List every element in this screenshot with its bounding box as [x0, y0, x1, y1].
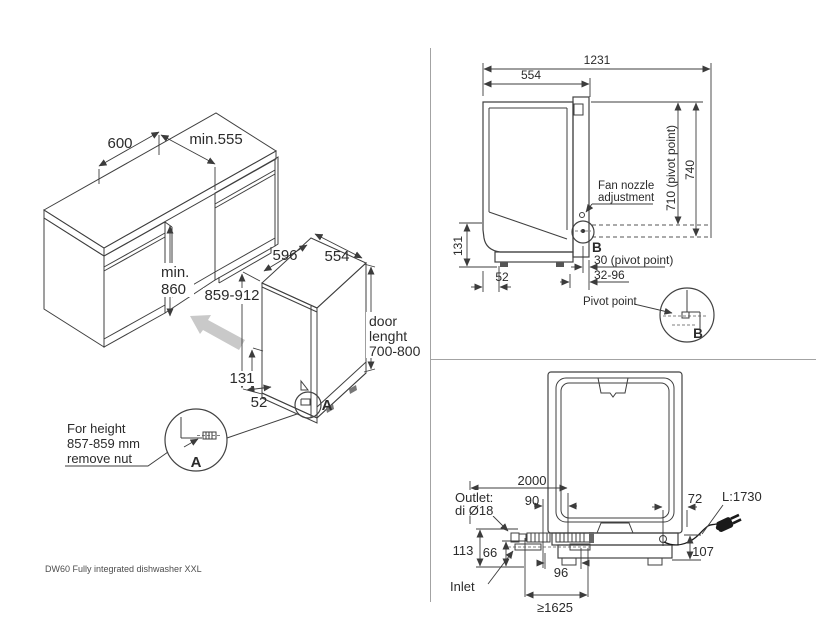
dim-door-length-line3: 700-800	[369, 343, 421, 359]
sideview-foot	[500, 262, 508, 267]
inlet-label: Inlet	[450, 579, 475, 594]
pivot-point-label: Pivot point	[583, 296, 638, 308]
detail-a-marker-label: A	[322, 397, 333, 414]
dim-inlet-height: 66	[483, 545, 497, 560]
outlet-label-line2: di Ø18	[455, 503, 493, 518]
right-cabinet-front	[215, 159, 275, 280]
dim-outlet-height: 113	[453, 543, 474, 558]
fan-nozzle-point	[580, 213, 585, 218]
rear-foot	[562, 558, 576, 565]
detail-a-note-line2: 857-859 mm	[67, 436, 140, 451]
dim-door-length-line1: door	[369, 313, 397, 329]
installation-drawing-page: 600 min.555 min. 860 596 554 859-912 131…	[0, 0, 820, 643]
counter-front-edge	[104, 151, 276, 256]
dim-depth: 554	[521, 68, 541, 82]
fan-nozzle-label-line2: adjustment	[598, 192, 655, 204]
dim-niche-depth: min.555	[189, 131, 242, 148]
dim-line-foot-offset	[247, 387, 271, 390]
dim-outlet-position: 90	[525, 493, 539, 508]
dim-drain-hose: 2000	[518, 473, 547, 488]
pivot-glyph	[682, 312, 689, 318]
hinge-glyph	[574, 104, 583, 115]
left-cabinet-front	[104, 222, 165, 347]
dim-niche-height-line2: 860	[161, 281, 186, 298]
rear-top-notch	[598, 378, 628, 397]
drawing-canvas: 600 min.555 min. 860 596 554 859-912 131…	[0, 0, 820, 643]
dim-pivot-height: 710 (pivot point)	[664, 125, 678, 211]
left-cabinet-side	[44, 218, 104, 347]
dim-niche-width: 600	[107, 135, 132, 152]
dim-unit-height: 859-912	[204, 287, 259, 304]
detail-a-label: A	[191, 454, 202, 471]
detail-a-note-line1: For height	[67, 421, 126, 436]
fan-nozzle-glyph	[301, 381, 308, 390]
dim-pivot-offset: 30 (pivot point)	[594, 253, 673, 267]
sideview-door	[573, 97, 589, 257]
detail-b-label: B	[693, 326, 703, 341]
dim-cord-position: 72	[688, 491, 702, 506]
dim-adjust-range: 32-96	[594, 268, 625, 282]
dim-base-height-rear: 107	[692, 544, 714, 559]
pivot-point-leader	[634, 304, 672, 313]
dim-total-depth: 1231	[584, 53, 611, 67]
dim-base-height: 131	[229, 370, 254, 387]
counter-left-edge	[44, 210, 104, 256]
detail-a-leader	[227, 414, 297, 438]
dim-unit-width: 596	[272, 247, 297, 264]
unit-side-face	[317, 263, 366, 418]
dim-min-distance: ≥1625	[537, 600, 573, 615]
sideview-foot	[556, 262, 564, 267]
move-direction-arrow-icon	[190, 315, 245, 350]
dim-740: 740	[683, 160, 697, 180]
rear-foot	[648, 558, 662, 565]
sideview-body	[483, 102, 573, 252]
dim-door-length-line2: lenght	[369, 328, 407, 344]
power-plug-icon	[714, 512, 743, 533]
dim-unit-depth: 554	[324, 248, 349, 265]
dim-niche-height-line1: min.	[161, 264, 189, 281]
unit-door-face	[262, 283, 317, 418]
fan-nozzle-label-line1: Fan nozzle	[598, 180, 654, 192]
dim-foot-offset-side: 52	[495, 270, 509, 284]
unit-foot	[349, 385, 357, 394]
rear-connection-view: 2000 90 72 L:1730 Outlet: di Ø18 113 66 …	[450, 372, 762, 615]
detail-b-circle	[660, 288, 714, 342]
dim-hose-span: 96	[554, 565, 568, 580]
rear-inner-panel	[556, 378, 674, 522]
model-caption: DW60 Fully integrated dishwasher XXL	[45, 564, 202, 574]
dim-cord-length: L:1730	[722, 489, 762, 504]
rear-bottom-bump	[597, 523, 633, 533]
iso-installation-view: 600 min.555 min. 860 596 554 859-912 131…	[44, 113, 421, 471]
side-section-view: 1231 554 710 (pivot point) 740 131 52 Fa…	[451, 53, 714, 342]
dim-base-height-side: 131	[451, 236, 465, 256]
detail-a-note-line3: remove nut	[67, 451, 132, 466]
sideview-base	[495, 252, 573, 262]
dishwasher-unit-iso	[262, 238, 366, 423]
dim-foot-offset: 52	[251, 394, 268, 411]
